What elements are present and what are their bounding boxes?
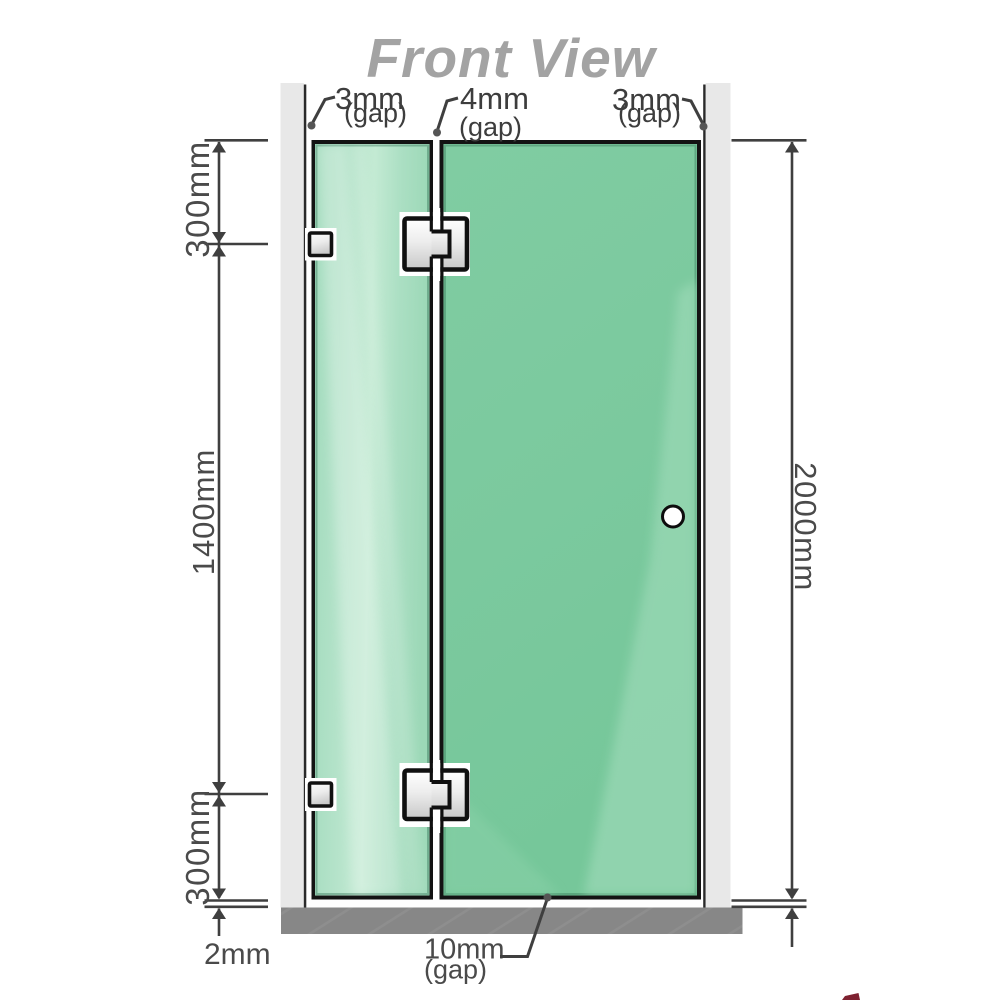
svg-text:300mm: 300mm xyxy=(179,140,216,258)
svg-text:(gap): (gap) xyxy=(459,112,522,142)
svg-text:(gap): (gap) xyxy=(424,955,487,985)
svg-text:2000mm: 2000mm xyxy=(788,462,823,592)
svg-text:1400mm: 1400mm xyxy=(186,449,221,576)
svg-text:(gap): (gap) xyxy=(618,98,681,128)
svg-text:(gap): (gap) xyxy=(344,98,407,128)
svg-text:4mm: 4mm xyxy=(460,81,529,116)
svg-text:Front View: Front View xyxy=(366,27,657,89)
svg-text:2mm: 2mm xyxy=(204,938,271,971)
svg-text:300mm: 300mm xyxy=(179,788,216,906)
